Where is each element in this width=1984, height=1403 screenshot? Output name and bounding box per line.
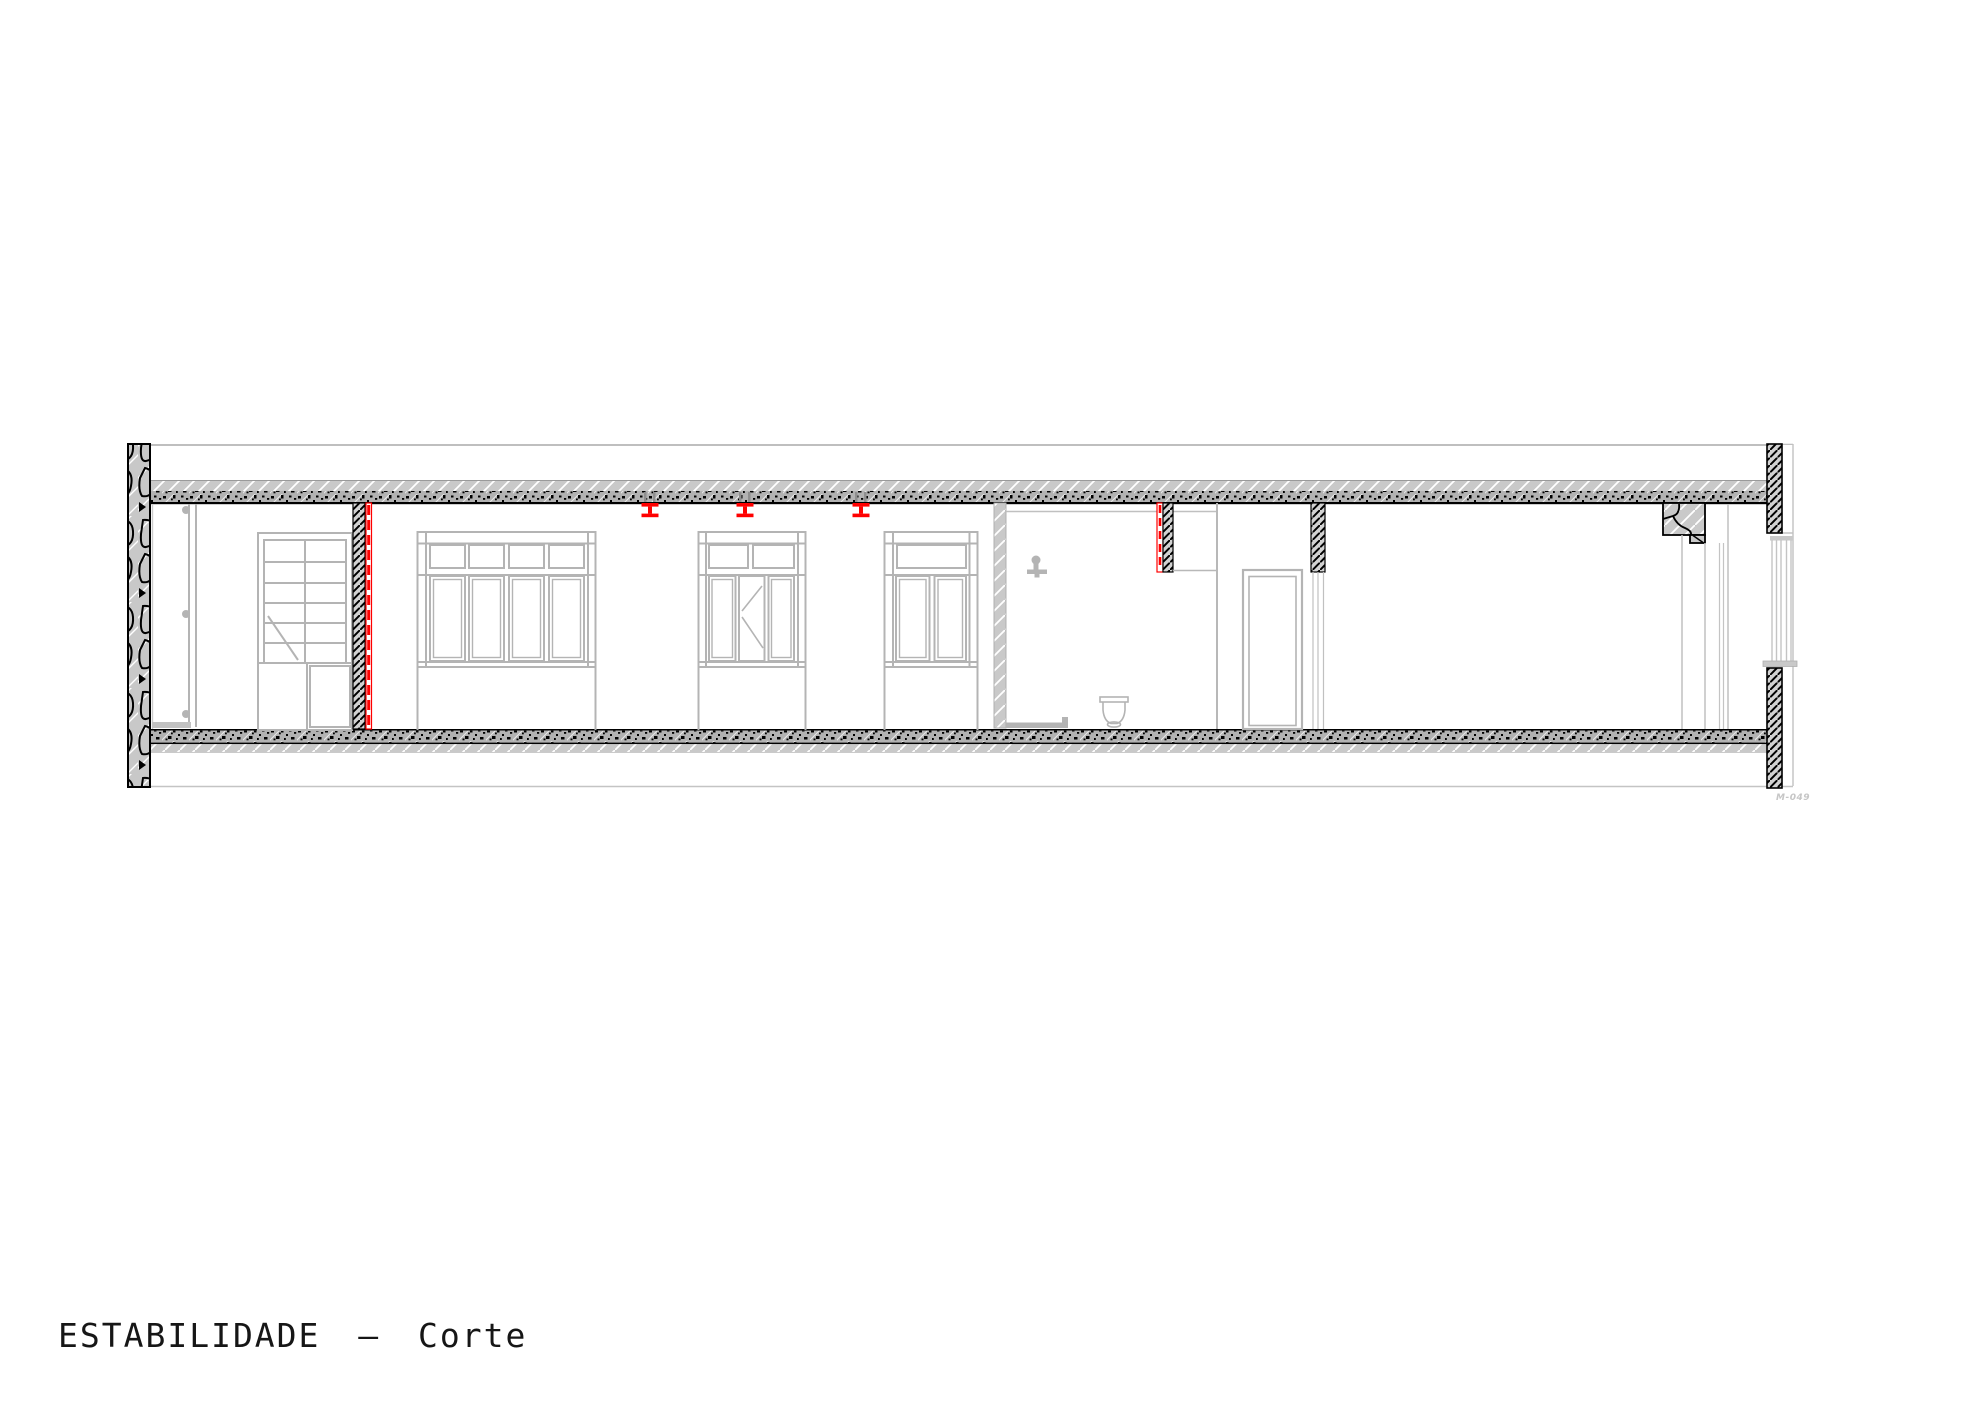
door-lintel-hatch (1311, 503, 1325, 729)
window-sill (1763, 661, 1797, 667)
bathroom (994, 503, 1325, 729)
opening-direction-chevron (742, 586, 763, 648)
section-drawing (0, 0, 1984, 1403)
bathroom-door (1243, 570, 1302, 729)
drawing-ref-code: M-049 (1776, 793, 1810, 803)
right-window (1763, 536, 1797, 667)
top-floor-slab (150, 480, 1767, 504)
shelving-unit (258, 533, 352, 730)
hinge-dot (182, 710, 190, 718)
drawing-title: ESTABILIDADE — Corte (58, 1316, 527, 1355)
hinge-dot (182, 610, 190, 618)
glazed-partition-1 (418, 532, 596, 730)
highlighted-wall-lintel (1157, 503, 1173, 572)
drawing-sheet: ESTABILIDADE — Corte M-049 (0, 0, 1984, 1403)
left-exterior-stone-wall (128, 444, 153, 787)
bottom-floor-slab (150, 729, 1767, 753)
stone-corbel (1663, 503, 1705, 543)
bathroom-plaster-partition (994, 503, 1006, 728)
glazed-partition-3 (885, 532, 978, 730)
toilet-icon (1100, 697, 1128, 727)
right-exterior-wall (1767, 444, 1793, 788)
glazed-partition-2 (699, 532, 806, 730)
highlighted-partition-wall (353, 503, 372, 729)
shower-curb (1006, 717, 1068, 728)
hinge-dot (182, 506, 190, 514)
shower-head-icon (1027, 556, 1047, 578)
interior-door-leaf (152, 504, 196, 728)
